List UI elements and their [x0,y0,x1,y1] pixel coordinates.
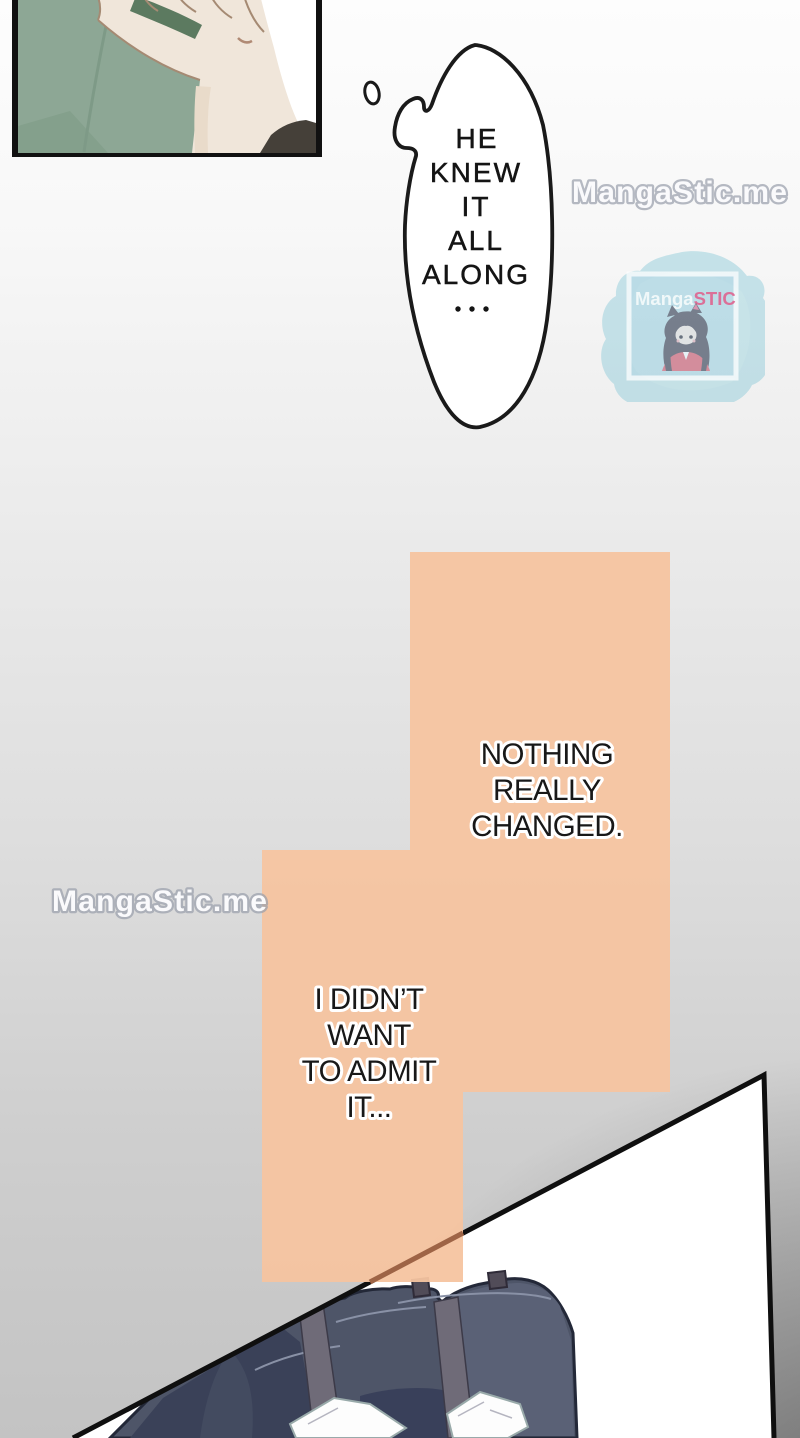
svg-text:MangaSTIC: MangaSTIC [635,288,736,309]
svg-text:CHANGED.: CHANGED. [471,810,623,843]
svg-text:HE: HE [456,123,499,154]
svg-text:IT: IT [462,191,491,222]
svg-text:ALL: ALL [448,225,504,256]
svg-text:IT...: IT... [346,1091,391,1124]
svg-text:KNEW: KNEW [430,157,522,188]
svg-text:TO ADMIT: TO ADMIT [302,1055,437,1088]
svg-text:NOTHING: NOTHING [481,738,614,771]
svg-text:I DIDN’T: I DIDN’T [314,983,424,1016]
svg-text:MangaStic.me: MangaStic.me [572,176,788,209]
svg-text:MangaStic.me: MangaStic.me [52,885,268,918]
svg-text:ALONG: ALONG [422,259,530,290]
svg-text:REALLY: REALLY [493,774,602,807]
svg-text:WANT: WANT [327,1019,411,1052]
